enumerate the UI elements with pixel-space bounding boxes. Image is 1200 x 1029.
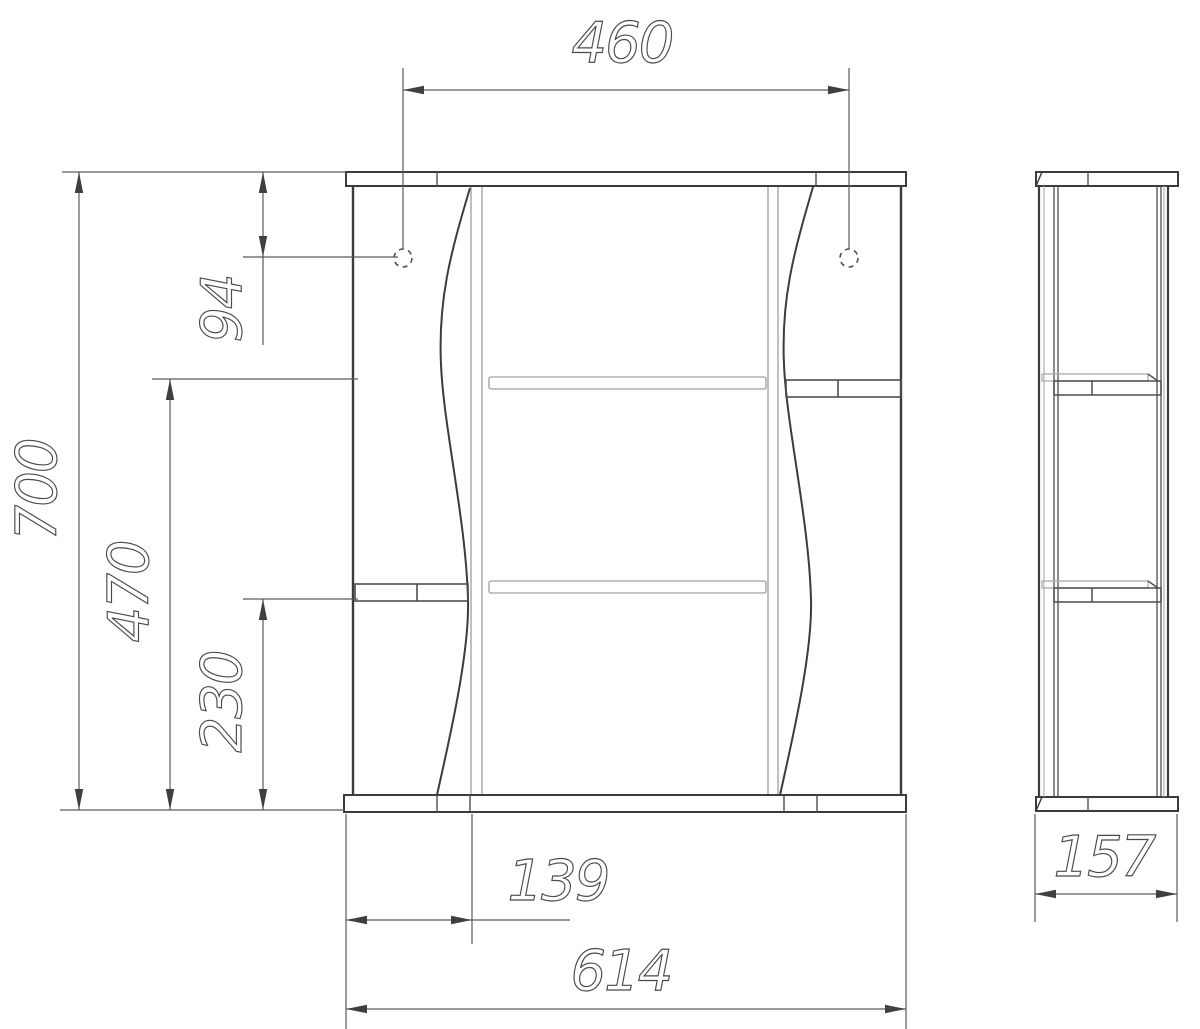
dimension-lower-shelf-height: 230 bbox=[190, 599, 358, 810]
dim-hinge-span-label: 460 bbox=[572, 11, 673, 76]
side-view bbox=[1036, 172, 1178, 811]
left-open-shelf bbox=[355, 584, 468, 601]
wave-door-edges bbox=[437, 187, 813, 795]
side-carcass bbox=[1036, 172, 1178, 811]
dimension-depth: 157 bbox=[1035, 814, 1177, 922]
dim-depth-label: 157 bbox=[1054, 825, 1157, 890]
side-shelf-upper bbox=[1042, 374, 1161, 395]
dim-lower-shelf-height-label: 230 bbox=[190, 652, 255, 753]
right-open-shelf bbox=[786, 380, 901, 397]
dim-left-section-width-label: 139 bbox=[508, 849, 609, 914]
mirror-opening-edges bbox=[471, 187, 778, 795]
dim-hinge-top-offset-label: 94 bbox=[190, 275, 255, 342]
side-shelf-lower bbox=[1042, 581, 1161, 602]
technical-drawing-page: 460 700 470 230 94 139 614 bbox=[0, 0, 1200, 1029]
dimension-overall-height: 700 bbox=[5, 172, 346, 810]
dimension-left-section-width: 139 bbox=[346, 814, 608, 944]
interior-shelf-lines bbox=[489, 377, 766, 593]
cabinet-drawing: 460 700 470 230 94 139 614 bbox=[0, 0, 1200, 1029]
dim-overall-width-label: 614 bbox=[571, 939, 672, 1004]
dimension-hinge-span: 460 bbox=[403, 11, 849, 249]
cabinet-carcass bbox=[344, 172, 906, 812]
front-view bbox=[344, 172, 906, 812]
dimension-overall-width: 614 bbox=[346, 814, 906, 1029]
dim-overall-height-label: 700 bbox=[5, 440, 70, 541]
dimension-hinge-top-offset: 94 bbox=[190, 172, 398, 345]
hinge-hole-markers bbox=[394, 249, 858, 267]
dim-upper-shelf-height-label: 470 bbox=[97, 542, 162, 643]
